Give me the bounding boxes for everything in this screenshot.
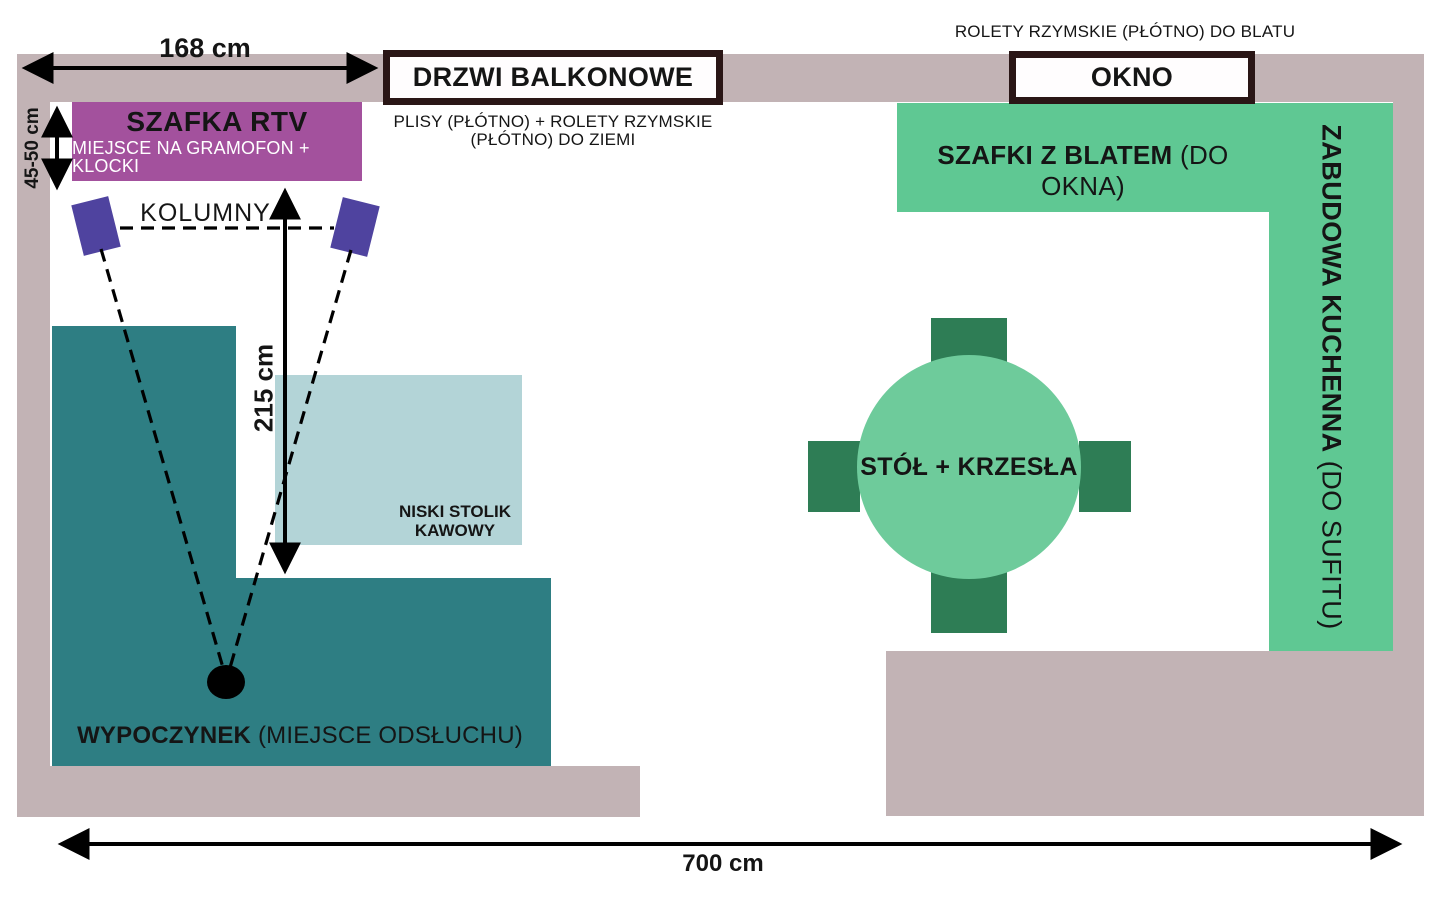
balcony-door-label-box: DRZWI BALKONOWE [383, 50, 723, 105]
dimension-rtv-depth: 45-50 cm [22, 107, 44, 188]
chair-right [1079, 441, 1131, 512]
dining-table: STÓŁ + KRZESŁA [857, 355, 1081, 579]
balcony-door-note-line2: (PŁÓTNO) DO ZIEMI [383, 131, 723, 149]
kitchen-tall-unit-label: ZABUDOWA KUCHENNA (DO SUFITU) [1316, 124, 1347, 629]
balcony-door-note-line1: PLISY (PŁÓTNO) + ROLETY RZYMSKIE [383, 113, 723, 131]
rtv-cabinet: SZAFKA RTV MIEJSCE NA GRAMOFON + KLOCKI [72, 102, 362, 181]
dimension-listening-distance: 215 cm [249, 344, 280, 432]
coffee-table-label: NISKI STOLIK KAWOWY [393, 502, 517, 540]
speakers-label: KOLUMNY [138, 199, 273, 228]
coffee-table-label-line2: KAWOWY [393, 521, 517, 540]
balcony-door-note: PLISY (PŁÓTNO) + ROLETY RZYMSKIE (PŁÓTNO… [383, 113, 723, 149]
rtv-cabinet-title: SZAFKA RTV [126, 108, 307, 136]
left-speaker [71, 196, 120, 256]
lounge-label: WYPOCZYNEK (MIEJSCE ODSŁUCHU) [60, 722, 540, 750]
kitchen-counter-label: SZAFKI Z BLATEM (DO OKNA) [897, 140, 1269, 202]
kitchen-tall-unit-label-bold: ZABUDOWA KUCHENNA [1317, 124, 1347, 452]
wall-bottom-right [886, 651, 1424, 816]
dining-table-label: STÓŁ + KRZESŁA [860, 453, 1077, 482]
window-note: ROLETY RZYMSKIE (PŁÓTNO) DO BLATU [940, 22, 1310, 42]
wall-bottom-left [17, 766, 640, 817]
floor-plan: SZAFKA RTV MIEJSCE NA GRAMOFON + KLOCKI … [0, 0, 1440, 900]
window-label-box: OKNO [1009, 51, 1255, 104]
chair-bottom [931, 572, 1007, 633]
dimension-room-width: 700 cm [658, 850, 788, 878]
chair-left [808, 441, 860, 512]
kitchen-tall-unit-label-regular: (DO SUFITU) [1317, 453, 1347, 630]
right-speaker [330, 197, 379, 257]
lounge-area-vertical [52, 326, 236, 578]
rtv-cabinet-subtitle: MIEJSCE NA GRAMOFON + KLOCKI [72, 139, 362, 175]
coffee-table-label-line1: NISKI STOLIK [393, 502, 517, 521]
dimension-top-width: 168 cm [145, 33, 265, 64]
window-label: OKNO [1091, 62, 1173, 93]
kitchen-counter-label-bold: SZAFKI Z BLATEM [937, 140, 1172, 170]
balcony-door-label: DRZWI BALKONOWE [413, 62, 693, 93]
lounge-label-bold: WYPOCZYNEK [77, 722, 251, 749]
lounge-label-regular: (MIEJSCE ODSŁUCHU) [251, 722, 523, 749]
